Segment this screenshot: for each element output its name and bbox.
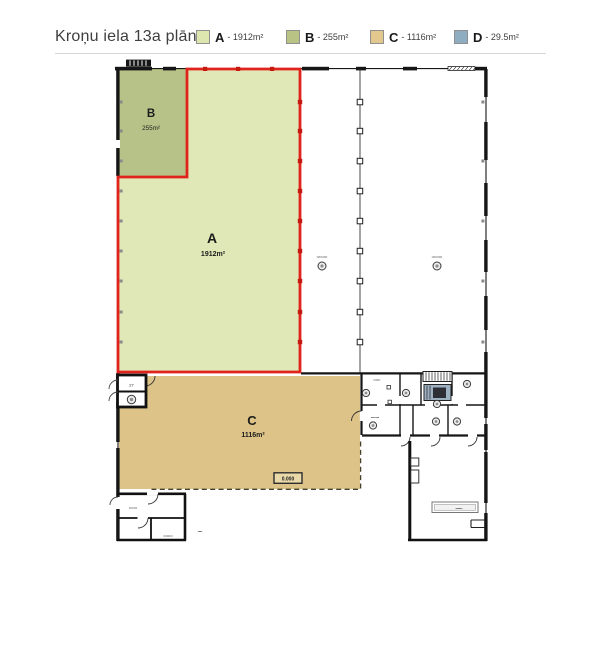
hall2-utility-symbol: ••••••••• bbox=[432, 255, 443, 270]
top-hatched-opening bbox=[448, 67, 475, 71]
room-bl-note-top: ••••••• bbox=[129, 506, 138, 510]
room-bl-note-bottom: •••••••• bbox=[163, 534, 173, 538]
floor-plan: B 255m² A 1912m² C 1116m² ••••••••• ••••… bbox=[0, 0, 601, 670]
section-c-area: 1116m² bbox=[241, 432, 265, 439]
stairs bbox=[423, 372, 452, 401]
office-note-left: ••••••• bbox=[371, 416, 380, 420]
outside-note: •••• bbox=[198, 530, 203, 534]
section-b-area: 255m² bbox=[142, 125, 160, 132]
room-27: 27 bbox=[118, 375, 147, 407]
canopy-hatch bbox=[126, 60, 151, 67]
floor-plan-page: Kroņu iela 13a plāns A - 1912m² B - 255m… bbox=[0, 0, 601, 670]
section-b-fill bbox=[118, 69, 187, 177]
hall1-note: ••••••••• bbox=[317, 255, 328, 259]
section-a-area: 1912m² bbox=[201, 251, 226, 258]
bottom-right-block: •••••• bbox=[408, 441, 487, 540]
section-b-label: B bbox=[147, 108, 155, 120]
room-27-number: 27 bbox=[129, 383, 134, 388]
bottom-left-rooms: ••••••• •••••••• •••• bbox=[117, 493, 203, 541]
office-note-top: •••••• bbox=[374, 378, 382, 382]
strip-box: •••••• bbox=[432, 502, 478, 513]
hall2-note: ••••••••• bbox=[432, 255, 443, 259]
section-a-label: A bbox=[207, 230, 217, 246]
hall1-utility-symbol: ••••••••• bbox=[317, 255, 328, 270]
office-block: •••••• ••••••• bbox=[352, 372, 487, 447]
elevation-marker: 0.000 bbox=[274, 473, 302, 484]
strip-box-note: •••••• bbox=[455, 507, 463, 511]
section-c-fill bbox=[119, 376, 360, 489]
elevation-value: 0.000 bbox=[282, 476, 295, 482]
section-c-label: C bbox=[247, 413, 257, 428]
